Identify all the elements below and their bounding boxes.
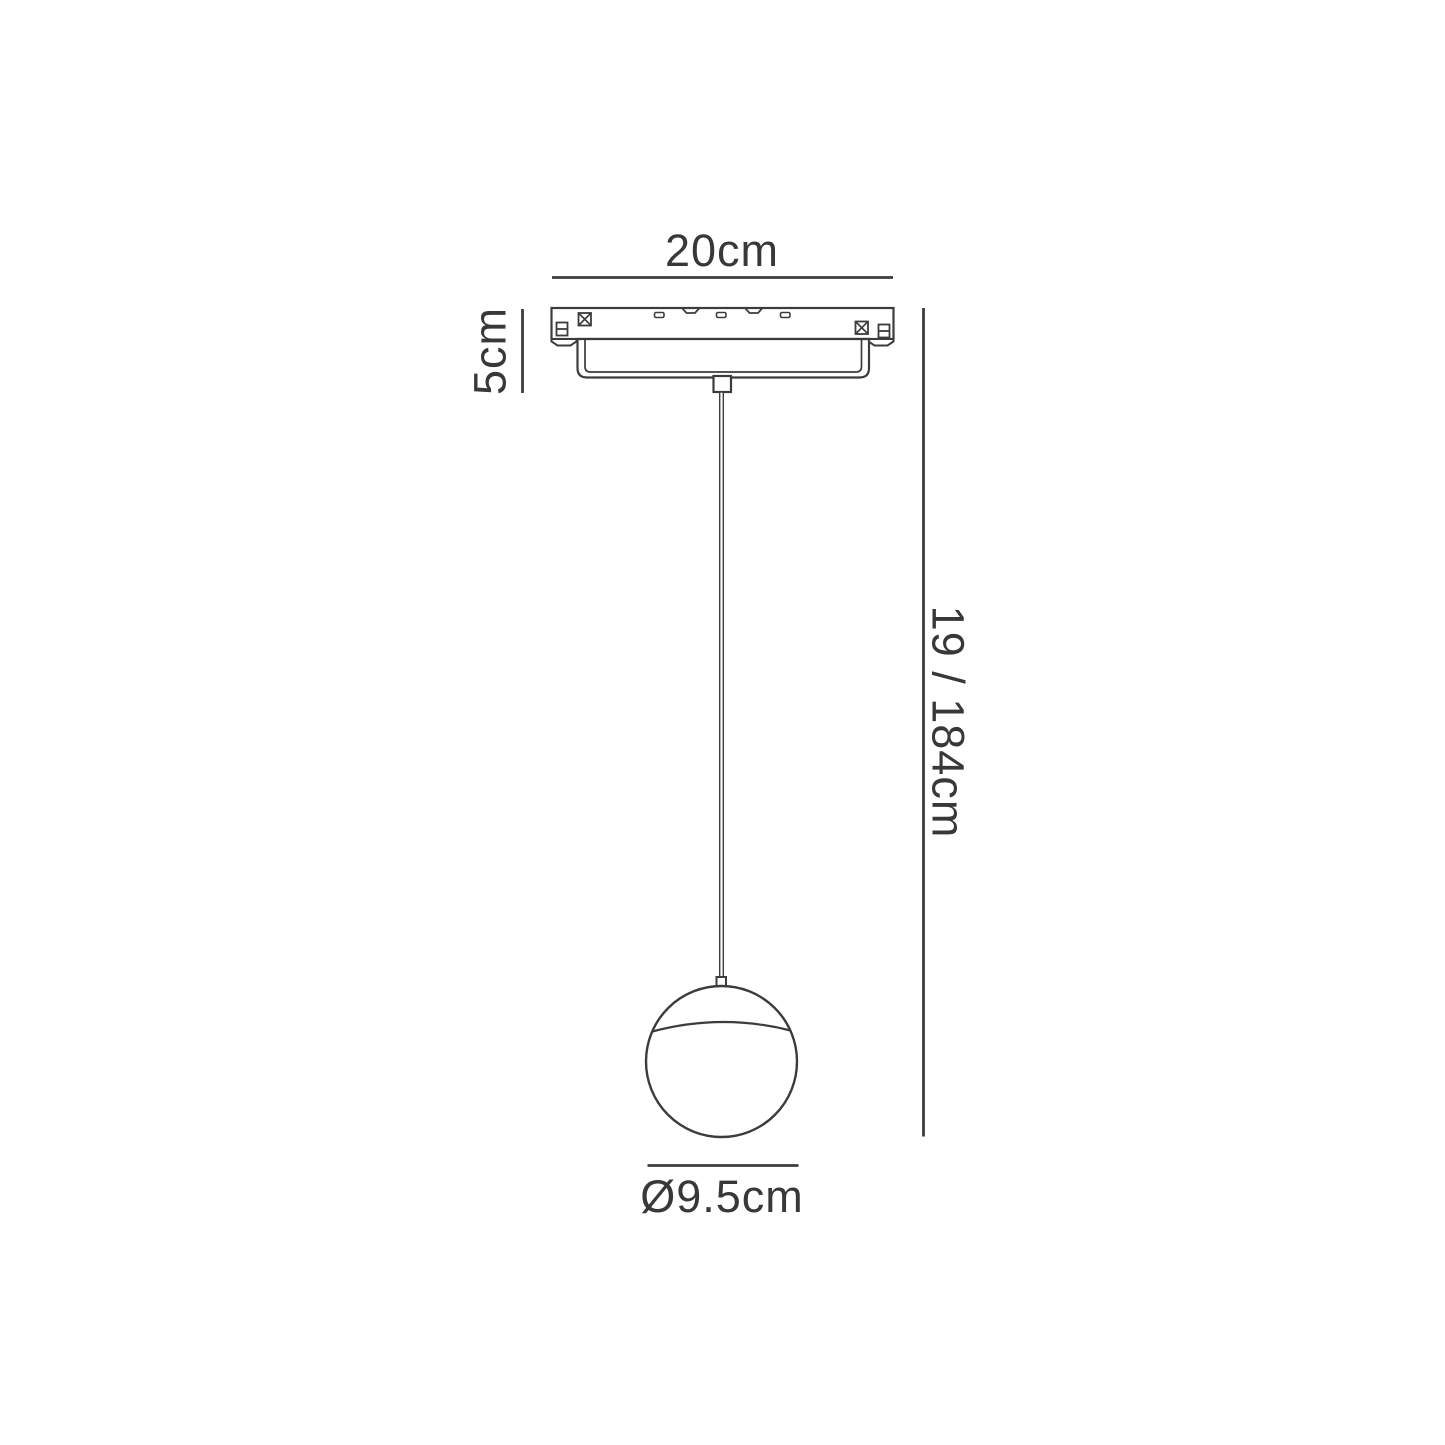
magnet-symbol-left-icon bbox=[579, 313, 592, 326]
track-adapter-assembly bbox=[552, 308, 894, 392]
sphere-shade bbox=[646, 977, 797, 1137]
contact-slot-2 bbox=[717, 313, 727, 318]
fixture-height-dimension-label: 5cm bbox=[465, 307, 516, 395]
magnet-symbol-right-icon bbox=[856, 322, 869, 335]
end-tab-right bbox=[879, 325, 890, 338]
width-dimension: 20cm bbox=[552, 225, 893, 278]
mounting-foot-right bbox=[869, 339, 894, 346]
drop-length-dimension: 19 / 184cm bbox=[923, 308, 974, 1137]
sphere-outline bbox=[646, 986, 797, 1137]
shade-diameter-dimension-label: Ø9.5cm bbox=[640, 1171, 804, 1222]
drop-length-dimension-label: 19 / 184cm bbox=[923, 606, 974, 839]
cord-connector bbox=[714, 376, 732, 392]
contact-slot-3 bbox=[781, 313, 791, 318]
pendant-light-dimension-diagram: 20cm 5cm 19 / 184cm Ø9.5cm bbox=[0, 0, 1445, 1445]
width-dimension-label: 20cm bbox=[665, 225, 779, 276]
shade-diameter-dimension: Ø9.5cm bbox=[640, 1166, 804, 1223]
fixture-height-dimension: 5cm bbox=[465, 307, 523, 395]
mounting-foot-left bbox=[552, 339, 577, 346]
end-tab-left bbox=[557, 323, 568, 336]
technical-drawing: 20cm 5cm 19 / 184cm Ø9.5cm bbox=[0, 0, 1445, 1445]
contact-slot-1 bbox=[655, 313, 665, 318]
suspension-cord bbox=[720, 392, 724, 978]
